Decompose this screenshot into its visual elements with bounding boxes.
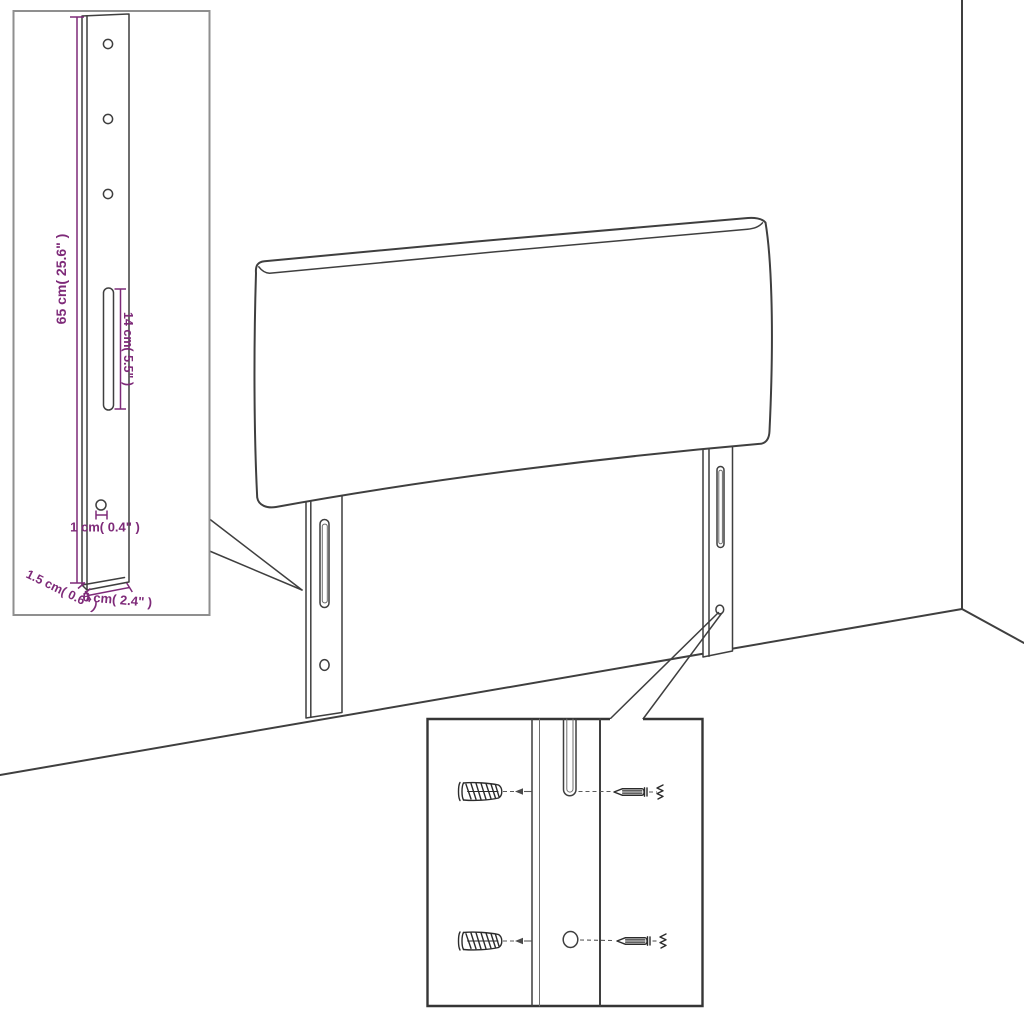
callout-left-wedge (210, 519, 303, 590)
bracket-inset: 65 cm( 25.6" ) 14 cm( 5.5" ) 1 cm( 0.4" … (14, 11, 210, 615)
hole-diameter-label: 1 cm( 0.4" ) (70, 520, 140, 535)
bracket-height-label: 65 cm( 25.6" ) (53, 234, 69, 325)
right-leg (703, 441, 733, 657)
hardware-inset (428, 719, 703, 1006)
diagram-canvas: 65 cm( 25.6" ) 14 cm( 5.5" ) 1 cm( 0.4" … (0, 0, 1024, 1024)
floor-line-right (962, 609, 1024, 643)
headboard-panel (254, 218, 771, 508)
bracket-drawing (82, 14, 129, 590)
left-leg (306, 486, 342, 718)
slot-length-label: 14 cm( 5.5" ) (121, 312, 135, 386)
